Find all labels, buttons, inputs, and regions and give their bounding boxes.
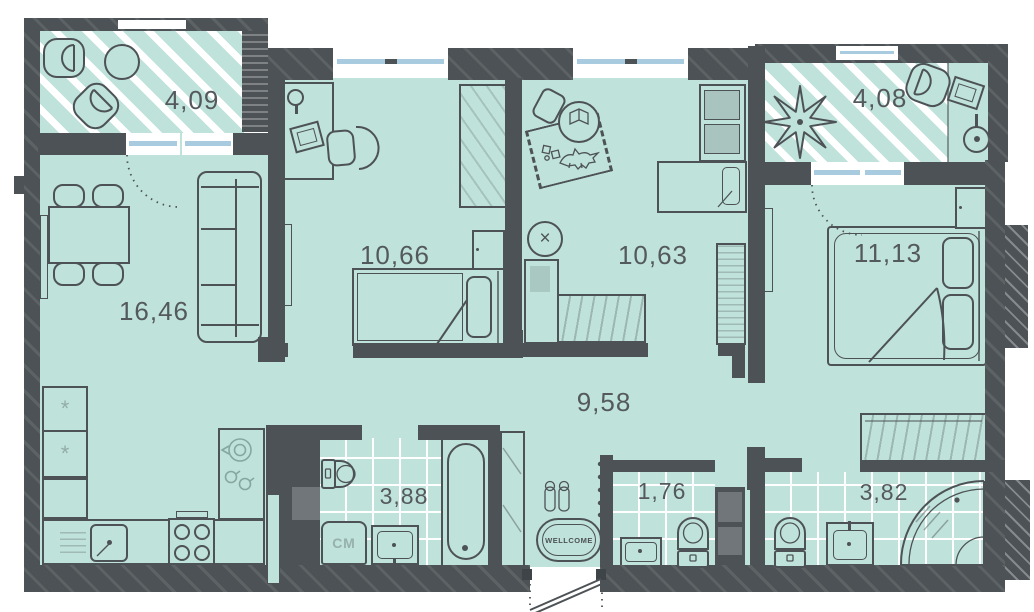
nursery-window-mullion xyxy=(625,59,637,64)
area-label-bedroom1: 10,66 xyxy=(350,242,440,268)
wall-corner-nursery-b xyxy=(732,343,745,378)
fridge: * * xyxy=(42,386,88,478)
bedroom1-window-mullion xyxy=(385,59,397,64)
child-bed-pillow xyxy=(722,167,740,205)
sofa-armrest-line xyxy=(201,324,259,326)
sink-drain xyxy=(847,542,851,546)
wall-left-pier xyxy=(14,176,24,194)
wall-bathroom-right xyxy=(488,432,500,567)
pillow xyxy=(942,237,974,289)
nightstand-knob xyxy=(476,248,479,251)
bedroom2-window-glazing xyxy=(865,170,901,175)
bed-mattress xyxy=(357,273,463,341)
balconyL-window-glazing xyxy=(185,141,231,146)
pillow xyxy=(942,294,974,350)
wardrobe-door-panel xyxy=(704,90,740,120)
stove xyxy=(168,518,215,565)
wall-wc-top xyxy=(613,460,715,472)
sink-drain xyxy=(392,543,396,547)
snowflake-icon: * xyxy=(44,432,86,476)
nursery-desk-tall xyxy=(524,259,559,344)
bathtub-drain xyxy=(462,545,468,551)
sink-faucet xyxy=(848,521,851,531)
neighbor-wall-upper xyxy=(1005,225,1028,348)
wall-balconyL-a xyxy=(38,133,127,155)
area-label-nursery: 10,63 xyxy=(608,242,698,268)
pouf xyxy=(558,101,600,143)
snowflake-icon: * xyxy=(44,388,86,432)
wall-bedroom2-left xyxy=(750,183,765,383)
door-post-bedrooms xyxy=(505,330,523,358)
floor-lamp-base xyxy=(974,136,980,142)
wall-bottom-right xyxy=(600,565,1005,592)
hall-shelving xyxy=(500,431,525,573)
floor-plan: * * СМ WELLCOME xyxy=(0,0,1034,612)
dining-chair xyxy=(92,262,124,286)
balcony-table xyxy=(104,44,140,80)
entrance-door-leaf xyxy=(530,579,604,612)
area-label-balcony-left: 4,09 xyxy=(150,87,234,113)
balcony-left-glazing xyxy=(118,20,186,29)
wc-shaft-panel-a xyxy=(718,492,742,522)
wall-left xyxy=(24,18,40,592)
wardrobe xyxy=(459,84,507,208)
bathtub-basin xyxy=(447,443,485,560)
stool: × xyxy=(527,221,563,257)
wall-shower-top-a xyxy=(750,458,802,472)
doormat: WELLCOME xyxy=(536,518,602,562)
area-label-bedroom2: 11,13 xyxy=(843,240,933,266)
wall-bedroom1-nursery xyxy=(505,78,522,358)
wall-shower-top-b xyxy=(860,460,1005,472)
pillow xyxy=(466,276,492,338)
wall-stub-living-b xyxy=(272,343,288,357)
neighbor-wall-lower xyxy=(1005,480,1030,580)
sofa xyxy=(197,171,262,343)
balconyL-door-glazing xyxy=(129,141,177,146)
wc-shaft-panel-b xyxy=(718,527,742,555)
nursery-wardrobe xyxy=(699,84,746,162)
bathroom-shaft-panel xyxy=(292,487,320,520)
desk-lamp xyxy=(287,89,304,106)
dining-table xyxy=(48,206,130,264)
entrance-jamb-right xyxy=(596,569,606,580)
mirror xyxy=(284,224,292,306)
area-label-wc: 1,76 xyxy=(628,480,696,503)
burner-icon xyxy=(194,524,210,540)
headboard-line xyxy=(497,271,499,343)
bench xyxy=(40,215,48,299)
wardrobe-door-panel xyxy=(704,124,740,154)
headboard-line xyxy=(978,231,980,361)
stove-handle xyxy=(176,511,208,518)
area-label-shower-room: 3,82 xyxy=(848,481,920,504)
sofa-cushion-line xyxy=(201,228,235,230)
dish-rack xyxy=(60,527,86,558)
nightstand-knob xyxy=(959,206,962,209)
area-label-balcony-right: 4,08 xyxy=(838,85,922,111)
sofa-back-line xyxy=(235,179,237,337)
entrance-jamb-left xyxy=(522,569,532,580)
sofa-armrest-line xyxy=(201,186,259,188)
kitchen-counter-tall xyxy=(218,428,265,520)
wall-balconyR-right xyxy=(988,44,1008,162)
nursery-bookshelf xyxy=(557,294,646,343)
bookshelf xyxy=(860,413,987,462)
sink-drain xyxy=(638,549,642,553)
wall-top-a xyxy=(268,48,333,80)
desk-item xyxy=(530,266,550,292)
wall-bedroom1-bottom xyxy=(353,343,507,358)
washing-machine: СМ xyxy=(321,521,367,565)
wall-balconyR-a xyxy=(765,162,811,185)
dining-chair xyxy=(53,184,85,208)
area-label-bathroom: 3,88 xyxy=(368,485,440,508)
dining-chair xyxy=(92,184,124,208)
desk-lamp-stem xyxy=(295,105,298,114)
kitchen-cabinet xyxy=(42,478,88,519)
entrance-door-swing-lines xyxy=(530,584,602,610)
nightstand xyxy=(472,230,505,272)
vent-shaft-left xyxy=(242,31,268,132)
wall-bedroom1-left xyxy=(268,78,285,362)
laptop-screen xyxy=(296,128,317,146)
area-label-hallway: 9,58 xyxy=(556,389,652,415)
balconyR-glazing-line xyxy=(840,51,894,54)
wall-balconyL-b xyxy=(233,133,268,155)
wall-top-b xyxy=(448,48,573,80)
nursery-dresser xyxy=(716,243,746,345)
dining-chair xyxy=(53,262,85,286)
burner-icon xyxy=(194,545,210,561)
balcony-left-floor xyxy=(38,28,244,133)
burner-icon xyxy=(174,524,190,540)
balcony-nook-divider xyxy=(947,62,949,162)
desk-chair xyxy=(325,129,356,167)
bathroom-door-leaf xyxy=(267,494,280,584)
notebook-inner xyxy=(954,83,976,102)
floor-lamp-stem xyxy=(975,114,978,128)
sofa-cushion-line xyxy=(201,284,235,286)
area-label-living: 16,46 xyxy=(106,298,202,324)
wall-right xyxy=(985,160,1005,592)
sink-drain xyxy=(107,540,112,545)
wall-nursery-bottom xyxy=(522,343,648,357)
wall-wc-left xyxy=(600,455,613,567)
mirror xyxy=(764,208,773,292)
doormat-label: WELLCOME xyxy=(542,524,596,556)
balconyR-door-glazing xyxy=(814,170,860,175)
burner-icon xyxy=(174,545,190,561)
bookshelf-shelf-line xyxy=(865,420,982,422)
